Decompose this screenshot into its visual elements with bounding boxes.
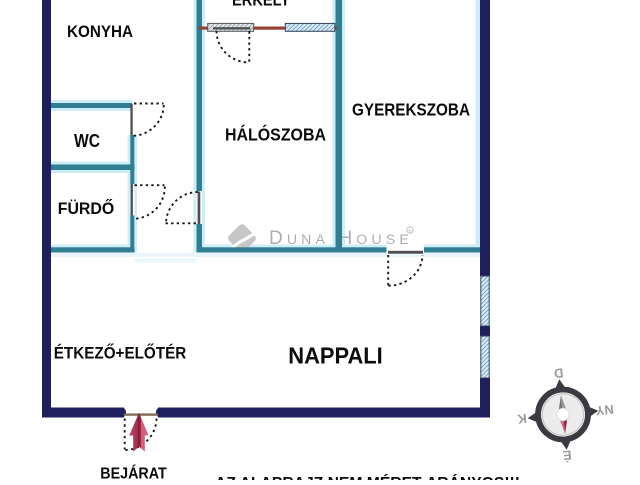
svg-text:GYEREKSZOBA: GYEREKSZOBA [352,100,470,120]
svg-text:KONYHA: KONYHA [67,22,133,41]
svg-text:BEJÁRAT: BEJÁRAT [100,464,167,480]
svg-text:FÜRDŐ: FÜRDŐ [58,199,115,218]
svg-text:NAPPALI: NAPPALI [288,343,383,369]
svg-text:AZ ALAPRAJZ NEM MÉRET-ARÁNYOS!: AZ ALAPRAJZ NEM MÉRET-ARÁNYOS!!! [215,473,520,480]
svg-text:ÉTKEZŐ+ELŐTÉR: ÉTKEZŐ+ELŐTÉR [54,344,187,363]
svg-text:WC: WC [74,131,100,151]
svg-text:HÁLÓSZOBA: HÁLÓSZOBA [225,124,326,145]
svg-text:ERKÉLY: ERKÉLY [232,0,290,10]
svg-text:D: D [553,365,564,381]
svg-text:NY: NY [595,402,615,419]
